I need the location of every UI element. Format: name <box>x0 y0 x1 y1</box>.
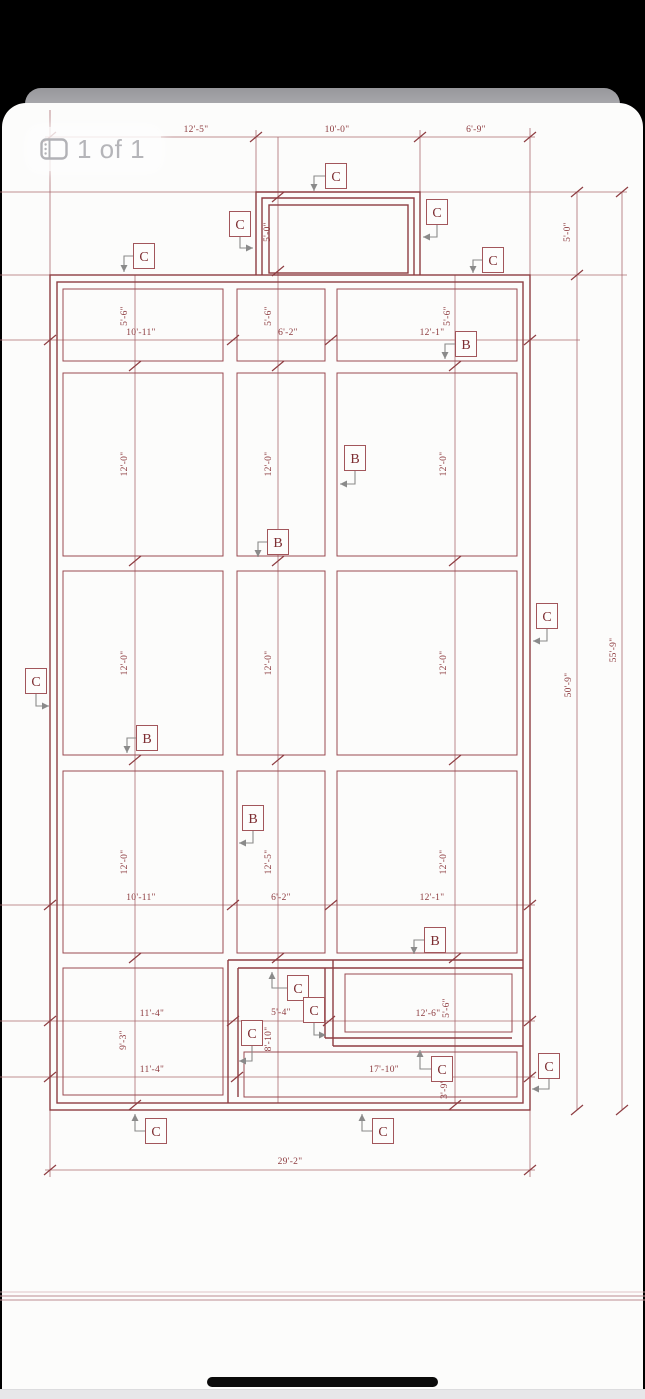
pdf-viewer-screen: { "viewer": { "page_indicator": "1 of 1"… <box>0 0 645 1398</box>
leader-arrow <box>417 1050 424 1057</box>
floor-plan-drawing: 12'-5"10'-0"6'-9"5'-0"5'-0"5'-6"10'-11"5… <box>0 0 645 1398</box>
dimension-label: 55'-9" <box>609 638 619 663</box>
callout-c: C <box>311 164 347 192</box>
leader-arrow <box>121 265 128 272</box>
callout-b: B <box>124 726 158 754</box>
dimension-label: 10'-11" <box>126 328 156 338</box>
dimension-label: 5'-6" <box>120 306 130 326</box>
sheet-border-lines <box>0 1292 645 1300</box>
dimension-label: 5'-6" <box>264 306 274 326</box>
callout-letter: C <box>293 982 302 997</box>
callout-letter: B <box>350 452 359 467</box>
callout-c: C <box>470 248 504 274</box>
dimension-label: 12'-5" <box>264 850 274 875</box>
page-indicator-pill[interactable]: 1 of 1 <box>28 127 161 171</box>
dimension-label: 6'-2" <box>278 328 298 338</box>
dimension-label: 5'-6" <box>442 998 452 1018</box>
callout-letter: B <box>273 536 282 551</box>
callout-c: C <box>423 200 448 241</box>
dimension-label: 5'-0" <box>263 222 273 242</box>
dimension-label: 5'-6" <box>443 306 453 326</box>
callout-c: C <box>269 972 309 1001</box>
callout-letter: C <box>331 170 340 185</box>
callout-letter: C <box>151 1125 160 1140</box>
home-indicator[interactable] <box>207 1377 438 1387</box>
dimension-label: 5'-4" <box>271 1008 291 1018</box>
dimension-label: 12'-1" <box>420 328 445 338</box>
callout-letter: B <box>461 338 470 353</box>
callout-c: C <box>304 998 327 1039</box>
callout-letter: B <box>248 812 257 827</box>
callout-c: C <box>121 244 155 273</box>
callout-letter: C <box>432 206 441 221</box>
dimension-label: 6'-9" <box>466 125 486 135</box>
page-indicator-label: 1 of 1 <box>77 134 145 165</box>
callout-c: C <box>230 212 254 252</box>
dimension-label: 3'-9" <box>440 1079 450 1099</box>
leader-arrow <box>42 703 49 710</box>
leader-arrow <box>442 352 449 359</box>
leader-arrow <box>423 234 430 241</box>
leader-arrow <box>470 266 477 273</box>
dimension-label: 12'-1" <box>420 893 445 903</box>
dimension-label: 12'-0" <box>439 850 449 875</box>
callout-letter: C <box>139 250 148 265</box>
dimension-label: 12'-0" <box>120 850 130 875</box>
callout-letter: C <box>31 675 40 690</box>
dimension-label: 29'-2" <box>278 1157 303 1167</box>
leader-arrow <box>239 840 246 847</box>
callout-c: C <box>132 1114 167 1144</box>
callout-letter: C <box>247 1027 256 1042</box>
leader-arrow <box>359 1114 366 1121</box>
dimension-label: 11'-4" <box>140 1009 164 1019</box>
dimension-label: 50'-9" <box>564 673 574 698</box>
callout-c: C <box>239 1021 263 1065</box>
callout-letter: C <box>544 1060 553 1075</box>
callout-c: C <box>532 1054 560 1093</box>
callout-c: C <box>533 604 558 645</box>
dimension-label: 6'-2" <box>271 893 291 903</box>
dimension-label: 11'-4" <box>140 1065 164 1075</box>
callouts-layer: CCCCCCCCCCCCCCBBBBBB <box>26 164 560 1144</box>
dimension-label: 17'-10" <box>369 1065 399 1075</box>
dimension-label: 12'-0" <box>439 452 449 477</box>
callout-letter: B <box>430 934 439 949</box>
leader-arrow <box>533 638 540 645</box>
leader-arrow <box>269 972 276 979</box>
callout-c: C <box>359 1114 394 1144</box>
dimension-label: 12'-0" <box>439 651 449 676</box>
callout-letter: C <box>488 254 497 269</box>
leader-arrow <box>124 746 131 753</box>
dimension-label: 5'-0" <box>563 222 573 242</box>
dimension-label: 10'-0" <box>325 125 350 135</box>
callout-letter: C <box>542 610 551 625</box>
leader-arrow <box>132 1114 139 1121</box>
thumbnails-icon <box>40 138 68 160</box>
leader-arrow <box>246 245 253 252</box>
callout-c: C <box>26 669 50 710</box>
dimension-label: 12'-0" <box>264 452 274 477</box>
dimension-ticks <box>44 132 628 1175</box>
dimension-label: 10'-11" <box>126 893 156 903</box>
callout-b: B <box>411 928 446 955</box>
dimension-label: 12'-0" <box>120 452 130 477</box>
callout-letter: C <box>437 1063 446 1078</box>
callout-letter: C <box>309 1004 318 1019</box>
leader-arrow <box>311 184 318 191</box>
dimension-label: 8'-10" <box>264 1027 274 1052</box>
leader-arrow <box>239 1058 246 1065</box>
dimension-label: 12'-0" <box>120 651 130 676</box>
callout-letter: B <box>142 732 151 747</box>
dimension-label: 12'-0" <box>264 651 274 676</box>
dimension-label: 9'-3" <box>119 1030 129 1050</box>
dimension-label: 12'-6" <box>416 1009 441 1019</box>
callout-b: B <box>442 332 477 360</box>
dimension-label: 12'-5" <box>184 125 209 135</box>
leader-arrow <box>532 1086 539 1093</box>
leader-arrow <box>340 481 347 488</box>
callout-b: B <box>340 446 366 488</box>
callout-b: B <box>239 806 264 847</box>
callout-b: B <box>255 530 289 558</box>
callout-letter: C <box>378 1125 387 1140</box>
callout-letter: C <box>235 218 244 233</box>
